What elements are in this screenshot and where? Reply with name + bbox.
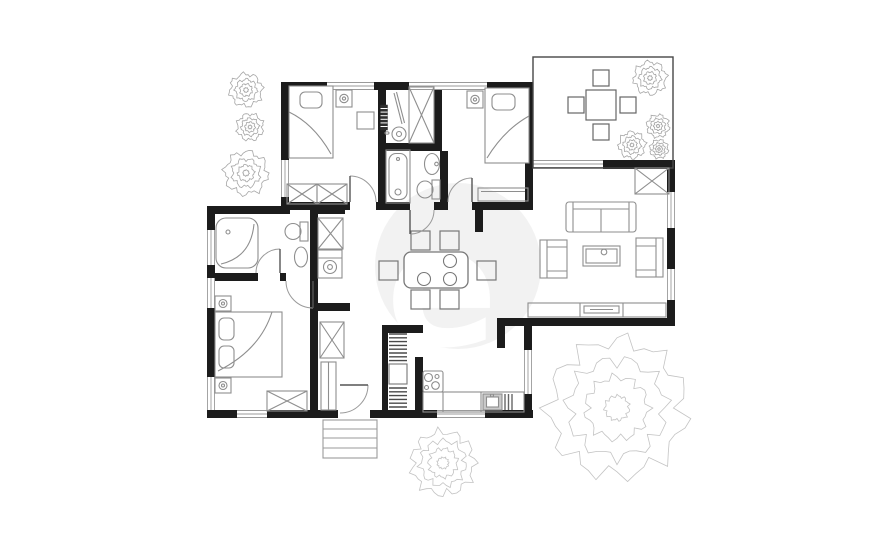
- wall: [524, 326, 532, 350]
- closet-column-icon: [409, 87, 434, 143]
- utility-washer-icon: [385, 127, 406, 141]
- window: [524, 350, 532, 394]
- living-corner-closet-icon: [635, 168, 669, 194]
- wall: [310, 206, 318, 412]
- window: [327, 82, 374, 90]
- wall: [434, 202, 448, 210]
- bathtub-icon: [386, 150, 410, 203]
- wall: [280, 273, 286, 281]
- door-entry: [340, 385, 368, 413]
- tree-garden-small-icon: [409, 427, 478, 497]
- terrace-table-icon: [586, 90, 616, 120]
- bedroom1-desk-icon: [357, 112, 374, 129]
- wall: [667, 228, 675, 269]
- window: [207, 230, 215, 265]
- window: [207, 377, 215, 410]
- shower-sink-icon: [295, 247, 308, 267]
- floor-plan-canvas: e: [0, 0, 890, 556]
- bush-left-1-icon: [229, 72, 265, 107]
- master-bed-icon: [215, 312, 282, 377]
- door-shower-room: [256, 249, 280, 273]
- bedroom1-nightstand-icon: [336, 90, 352, 107]
- window: [207, 278, 215, 308]
- wall: [370, 410, 437, 418]
- hall-washer-icon: [318, 250, 342, 278]
- window: [667, 192, 675, 228]
- bush-left-2-icon: [236, 113, 264, 141]
- entry-steps: [323, 420, 377, 458]
- door-bedroom1: [350, 176, 376, 202]
- kitchen-counter-icon: [423, 392, 524, 412]
- tree-garden-large-icon: [539, 333, 690, 482]
- wall: [207, 214, 215, 230]
- sofa-icon: [566, 202, 636, 232]
- bush-terrace-4-icon: [649, 139, 669, 159]
- coffee-table-icon: [583, 246, 620, 266]
- bathroom-sink-icon: [425, 154, 440, 175]
- window: [409, 82, 487, 90]
- window: [237, 410, 267, 418]
- bedroom1-wardrobe-icon: [287, 184, 347, 204]
- door-master-bedroom: [286, 281, 313, 308]
- wall: [497, 318, 533, 326]
- bedroom2-bed-icon: [485, 88, 529, 163]
- wall: [382, 325, 423, 333]
- bush-left-3-icon: [222, 150, 269, 196]
- master-nightstand-top-icon: [215, 296, 231, 311]
- wall: [472, 202, 533, 210]
- wall: [524, 394, 532, 412]
- armchair-left-icon: [540, 240, 567, 278]
- hall-closet-upper-icon: [318, 218, 343, 249]
- wall: [497, 326, 505, 348]
- wall: [211, 410, 237, 418]
- utility-ironing-board-icon: [394, 92, 405, 124]
- wall: [475, 210, 483, 232]
- bush-terrace-3-icon: [617, 131, 647, 160]
- wall: [211, 273, 258, 281]
- floor-plan: e: [0, 0, 890, 556]
- wall: [382, 333, 388, 413]
- bush-terrace-1-icon: [633, 60, 669, 95]
- wall: [667, 300, 675, 318]
- bush-terrace-2-icon: [646, 114, 670, 139]
- window: [667, 269, 675, 300]
- master-nightstand-bottom-icon: [215, 378, 231, 393]
- armchair-right-icon: [636, 238, 663, 277]
- terrace-outline: [533, 57, 673, 168]
- utility-shelf-icon: [381, 105, 388, 130]
- wall: [667, 168, 675, 192]
- entry-coat-closet-icon: [321, 362, 336, 410]
- wall: [207, 308, 215, 377]
- dining-table-icon: [404, 252, 468, 288]
- entry-closet-icon: [320, 322, 344, 358]
- bedroom2-nightstand-icon: [467, 91, 483, 108]
- bedroom1-bed-icon: [289, 86, 333, 158]
- wall: [533, 318, 675, 326]
- wall: [434, 90, 442, 151]
- window: [437, 410, 485, 418]
- tv-sideboard-icon: [528, 303, 666, 317]
- terrace-chairs-icon: [568, 70, 636, 140]
- wall: [415, 357, 423, 412]
- wall: [374, 82, 409, 90]
- shower-icon: [216, 218, 258, 268]
- shower-toilet-icon: [285, 222, 308, 241]
- wall: [281, 90, 289, 160]
- window: [533, 160, 603, 168]
- wall: [440, 151, 448, 210]
- master-wardrobe-icon: [267, 391, 307, 411]
- window: [281, 160, 289, 197]
- wall: [207, 206, 290, 214]
